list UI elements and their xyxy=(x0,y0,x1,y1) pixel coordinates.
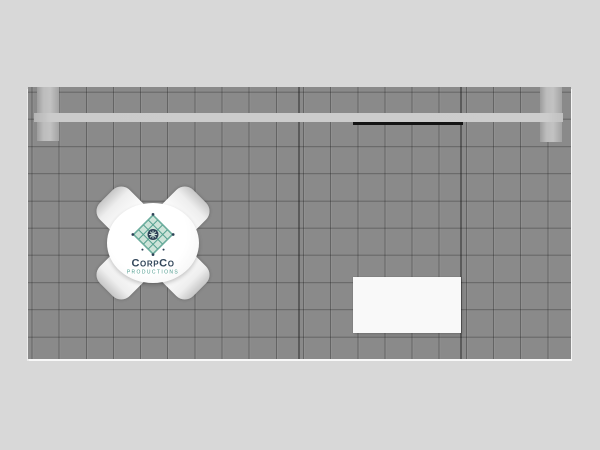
corpco-logo: CorpCo Productions xyxy=(111,212,195,277)
logo-company-name: CorpCo xyxy=(131,259,174,270)
panel-seam-left xyxy=(298,87,300,359)
grid-carpet-floor: CorpCo Productions xyxy=(28,87,571,359)
booth-render-stage: CorpCo Productions xyxy=(0,0,600,450)
white-counter xyxy=(353,277,461,333)
header-beam xyxy=(34,113,563,122)
wall-monitor-edge xyxy=(353,122,463,125)
logo-tagline: Productions xyxy=(127,270,179,277)
film-grid-diamond-icon xyxy=(131,212,175,258)
